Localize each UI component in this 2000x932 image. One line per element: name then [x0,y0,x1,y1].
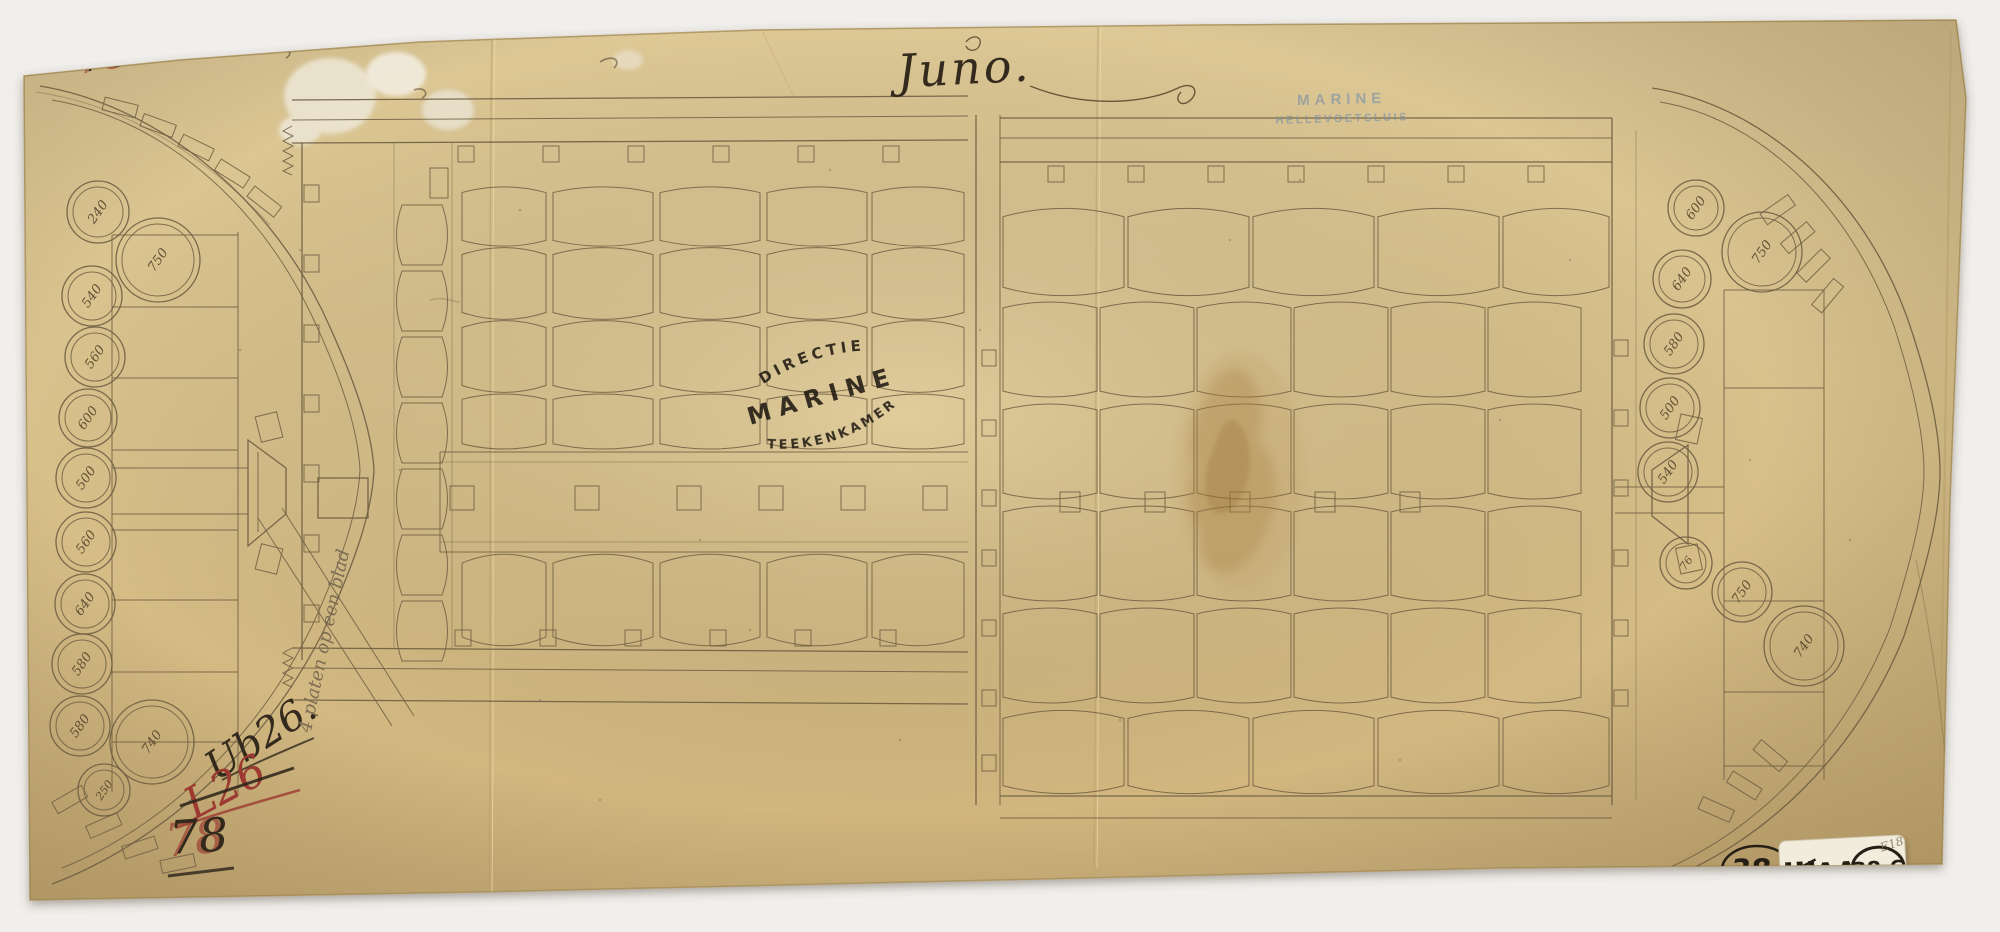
paper-speck [299,249,302,252]
paper-speck [1299,179,1302,182]
paper-speck [599,799,602,802]
paper-number: 38. [1730,853,1781,887]
paper-speck [539,699,542,702]
paper-speck [1229,239,1232,242]
paper-speck [1749,459,1752,462]
paper-speck [979,329,982,332]
paper-speck [699,539,702,542]
paper-speck [1849,539,1852,542]
paper-speck [1679,379,1682,382]
paper-speck [829,169,832,172]
ship-plan-svg: 2407505405606005005606405805807402506007… [0,0,2000,932]
paper-speck [1569,259,1572,262]
drawing-title: Juno. [888,38,1033,99]
paper-speck [1499,419,1502,422]
paper-speck [1119,719,1122,722]
paper-speck [899,739,902,742]
paper-speck [399,469,402,472]
paper-speck [1399,759,1402,762]
stamp-line1: MARINE [1297,90,1387,109]
top-left-mark: 78 [77,28,135,82]
sticker-circled-number: 38.6 [1852,856,1905,883]
paper-speck [519,209,522,212]
paper-speck [749,629,752,632]
water-stain [1178,352,1302,588]
bottom-left-mark: 78 [168,807,230,865]
paper-speck [239,349,242,352]
scanned-drawing: 2407505405606005005606405805807402506007… [0,0,2000,932]
